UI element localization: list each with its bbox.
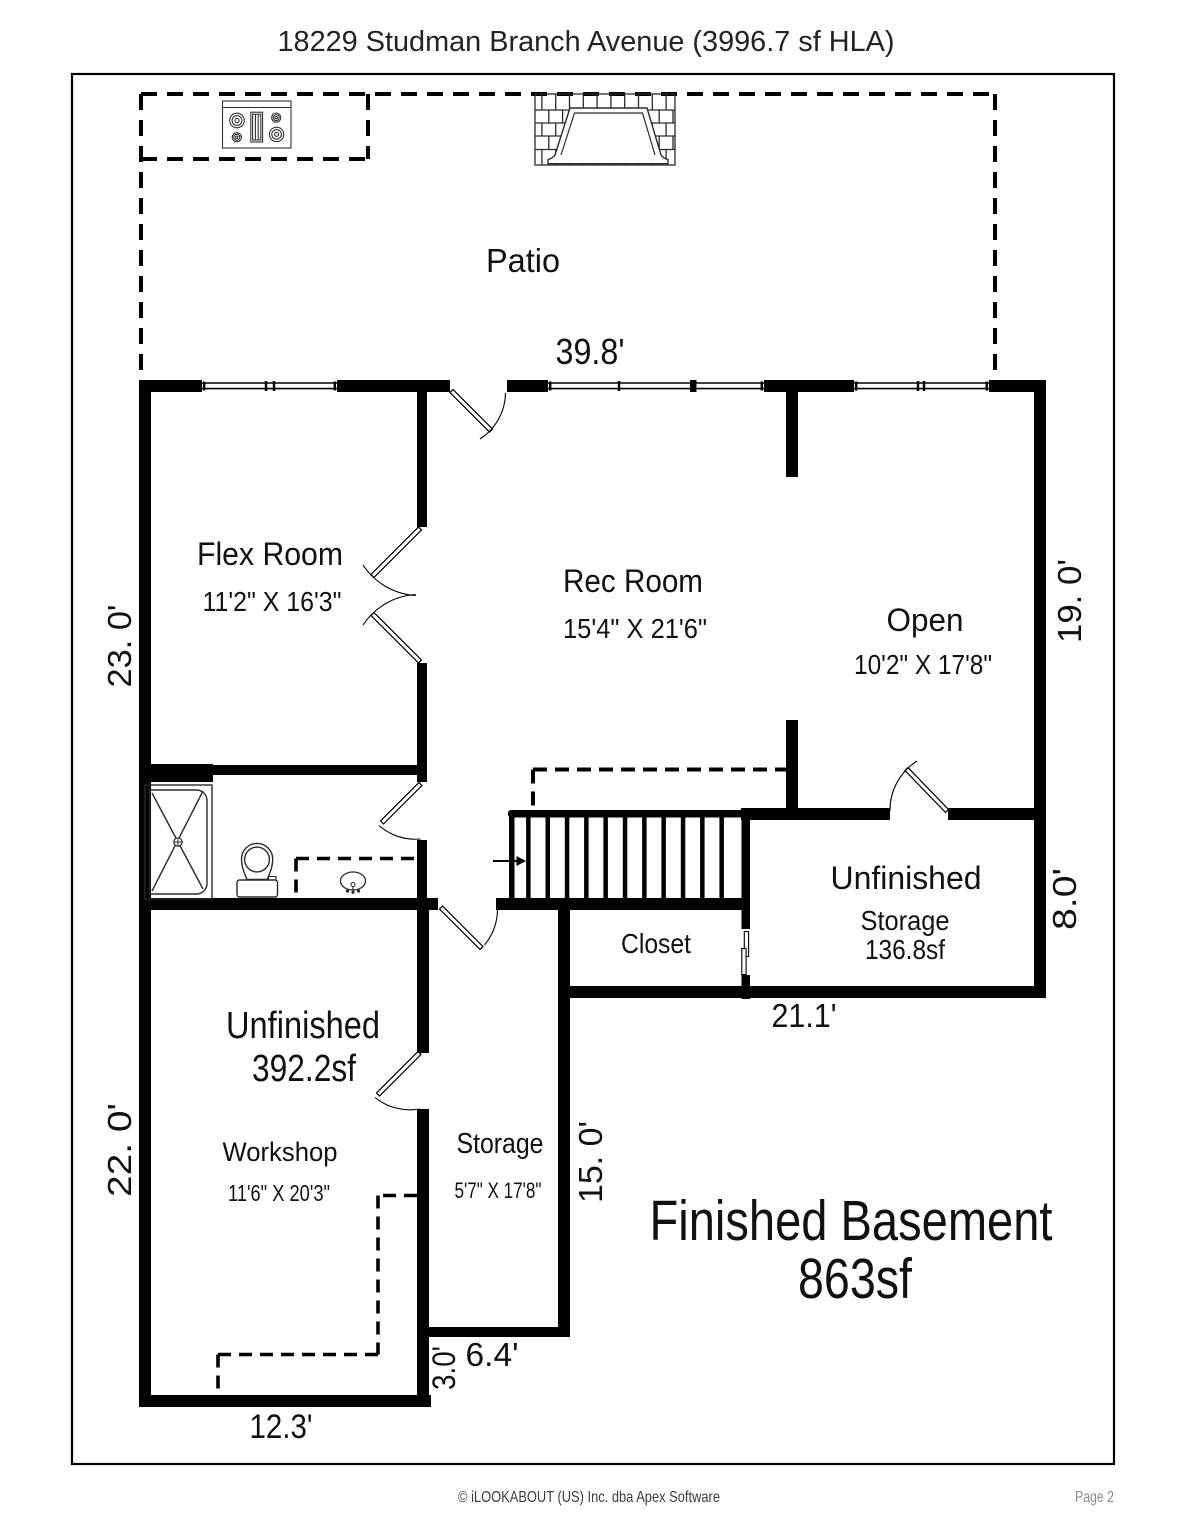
svg-text:23. 0': 23. 0' [101, 605, 138, 688]
svg-text:11'2" X 16'3": 11'2" X 16'3" [203, 586, 342, 617]
svg-text:12.3': 12.3' [250, 1408, 313, 1446]
svg-text:Unfinished: Unfinished [831, 860, 982, 896]
svg-text:Page 2: Page 2 [1075, 1489, 1114, 1506]
svg-text:39.8': 39.8' [556, 331, 625, 372]
svg-text:Open: Open [887, 602, 964, 638]
svg-text:© iLOOKABOUT (US) Inc. dba Ape: © iLOOKABOUT (US) Inc. dba Apex Software [458, 1489, 720, 1506]
svg-text:10'2" X 17'8": 10'2" X 17'8" [854, 649, 992, 680]
svg-text:22. 0': 22. 0' [101, 1103, 138, 1197]
svg-text:19. 0': 19. 0' [1051, 559, 1088, 643]
svg-text:11'6" X 20'3": 11'6" X 20'3" [228, 1180, 330, 1206]
svg-text:Closet: Closet [621, 928, 691, 959]
svg-text:8.0': 8.0' [1046, 868, 1083, 930]
svg-text:3.0': 3.0' [426, 1346, 462, 1390]
svg-text:Patio: Patio [486, 242, 560, 279]
svg-text:15. 0': 15. 0' [572, 1121, 609, 1203]
svg-text:392.2sf: 392.2sf [252, 1048, 356, 1090]
svg-text:136.8sf: 136.8sf [865, 934, 945, 965]
svg-text:Flex Room: Flex Room [197, 536, 343, 572]
svg-text:21.1': 21.1' [772, 997, 837, 1034]
svg-text:Storage: Storage [457, 1128, 544, 1160]
svg-text:Unfinished: Unfinished [226, 1005, 380, 1047]
svg-text:Finished Basement: Finished Basement [650, 1189, 1053, 1253]
svg-text:15'4" X 21'6": 15'4" X 21'6" [563, 613, 707, 644]
svg-text:Storage: Storage [861, 905, 950, 936]
svg-text:Workshop: Workshop [223, 1137, 338, 1167]
svg-text:6.4': 6.4' [466, 1336, 519, 1373]
svg-text:5'7" X 17'8": 5'7" X 17'8" [455, 1178, 542, 1203]
svg-text:18229 Studman Branch Avenue (3: 18229 Studman Branch Avenue (3996.7 sf H… [278, 26, 895, 58]
svg-text:Rec Room: Rec Room [563, 563, 703, 599]
svg-text:863sf: 863sf [798, 1247, 912, 1311]
